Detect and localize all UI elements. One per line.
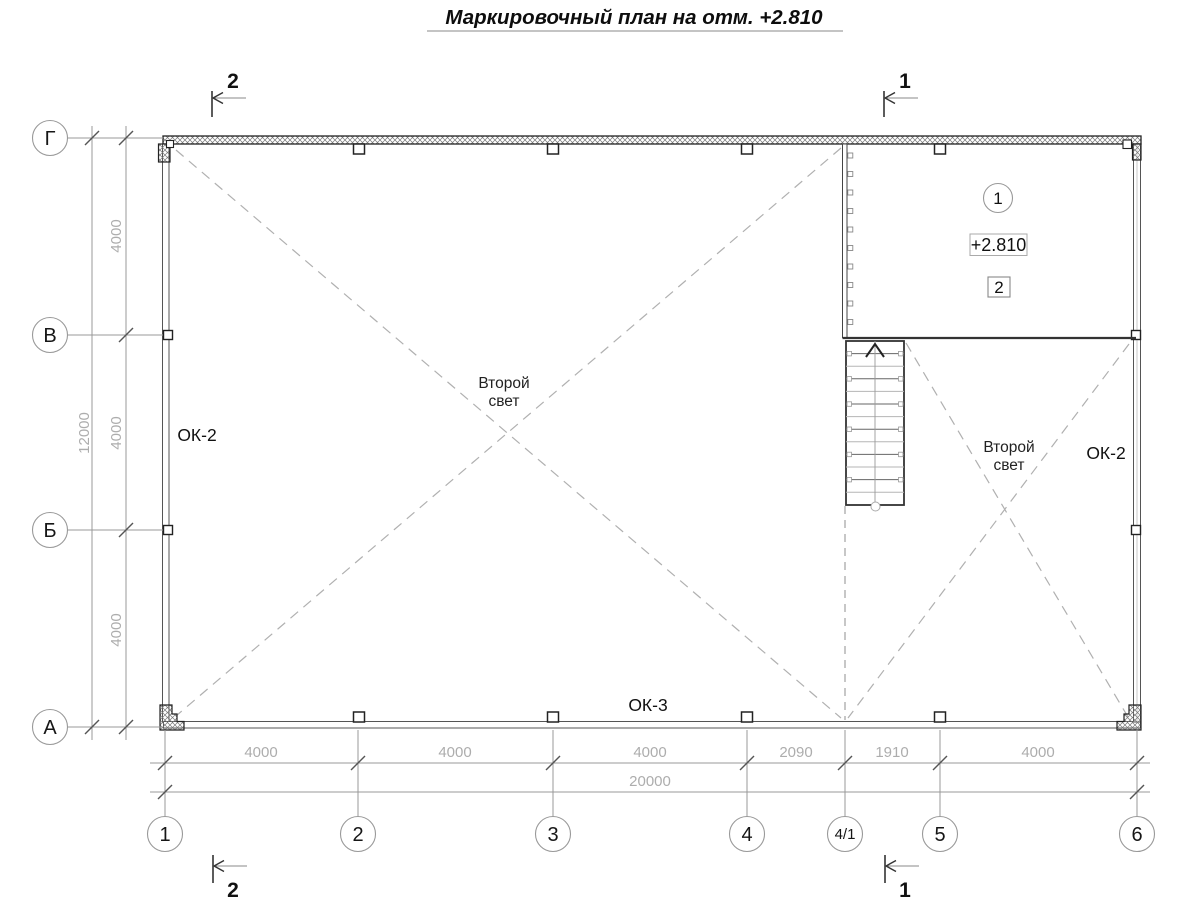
axis-label-1: 1 bbox=[159, 824, 170, 846]
corner-column-bottom-left bbox=[160, 705, 184, 730]
top-exterior-wall bbox=[163, 136, 1141, 144]
section-marker-2-top: 2 bbox=[212, 70, 246, 117]
section-marker-1-bottom: 1 bbox=[885, 855, 919, 900]
axis-label-5: 5 bbox=[934, 824, 945, 846]
corner-post-top-left bbox=[167, 141, 174, 148]
second-light-right-line1: Второй bbox=[983, 439, 1034, 456]
walls bbox=[163, 136, 1142, 728]
axis-label-v: В bbox=[43, 325, 56, 347]
section-2-bottom-number: 2 bbox=[227, 879, 239, 900]
left-window-wall bbox=[163, 144, 170, 722]
columns bbox=[164, 144, 1141, 722]
axis-label-b: Б bbox=[43, 520, 56, 542]
corner-post-top-right bbox=[1123, 140, 1132, 149]
dim-bottom-total: 20000 bbox=[629, 773, 671, 790]
marking-plan-drawing: Маркировочный план на отм. +2.810 bbox=[0, 0, 1200, 900]
dim-left-total: 12000 bbox=[76, 412, 93, 454]
dim-bottom-seg-1: 4000 bbox=[244, 744, 277, 761]
second-light-left-line2: свет bbox=[488, 393, 519, 410]
axis-label-4-1: 4/1 bbox=[835, 826, 856, 843]
section-marker-2-bottom: 2 bbox=[213, 855, 247, 900]
section-2-top-number: 2 bbox=[227, 70, 239, 93]
stair-pole bbox=[871, 502, 880, 511]
corner-column-bottom-right bbox=[1117, 705, 1141, 730]
section-markers: 2 1 2 1 bbox=[212, 70, 919, 900]
window-mark-bottom: ОК-3 bbox=[628, 695, 667, 715]
staircase bbox=[846, 341, 904, 511]
dim-bottom-seg-2: 4000 bbox=[438, 744, 471, 761]
window-mark-left: ОК-2 bbox=[177, 425, 216, 445]
dim-bottom-seg-4: 2090 bbox=[779, 744, 812, 761]
axis-label-2: 2 bbox=[352, 824, 363, 846]
detail-marker-number: 2 bbox=[994, 278, 1003, 297]
dim-bottom-seg-6: 4000 bbox=[1021, 744, 1054, 761]
bottom-axis-system: 4000 4000 4000 2090 1910 4000 20000 1 2 … bbox=[148, 730, 1155, 852]
axis-label-g: Г bbox=[45, 128, 56, 150]
axis-label-3: 3 bbox=[547, 824, 558, 846]
bottom-window-wall bbox=[164, 722, 1141, 729]
left-axis-system: 12000 4000 4000 4000 Г В Б А bbox=[33, 121, 164, 745]
corner-column-top-right bbox=[1133, 144, 1142, 160]
axis-label-4: 4 bbox=[741, 824, 752, 846]
section-marker-1-top: 1 bbox=[884, 70, 918, 117]
drawing-title: Маркировочный план на отм. +2.810 bbox=[427, 6, 843, 31]
elevation-marker-value: +2.810 bbox=[971, 235, 1027, 255]
corner-columns bbox=[159, 140, 1142, 730]
section-1-bottom-number: 1 bbox=[899, 879, 911, 900]
window-mark-right: ОК-2 bbox=[1086, 443, 1125, 463]
page-title: Маркировочный план на отм. +2.810 bbox=[445, 6, 823, 29]
axis-label-6: 6 bbox=[1131, 824, 1142, 846]
second-light-right-line2: свет bbox=[993, 457, 1024, 474]
partition-posts bbox=[848, 153, 853, 325]
dim-left-seg-1: 4000 bbox=[108, 219, 125, 252]
room-markers: 1 +2.810 2 bbox=[970, 184, 1027, 298]
dim-left-seg-2: 4000 bbox=[108, 416, 125, 449]
mezzanine-partition-wall bbox=[843, 144, 848, 338]
plan-labels: ОК-2 ОК-2 ОК-3 Второй свет Второй свет bbox=[177, 375, 1125, 715]
dim-left-seg-3: 4000 bbox=[108, 613, 125, 646]
dim-bottom-seg-3: 4000 bbox=[633, 744, 666, 761]
dim-bottom-seg-5: 1910 bbox=[875, 744, 908, 761]
second-light-left-line1: Второй bbox=[478, 375, 529, 392]
axis-label-a: А bbox=[43, 717, 57, 739]
section-1-top-number: 1 bbox=[899, 70, 911, 93]
position-marker-number: 1 bbox=[993, 189, 1002, 208]
